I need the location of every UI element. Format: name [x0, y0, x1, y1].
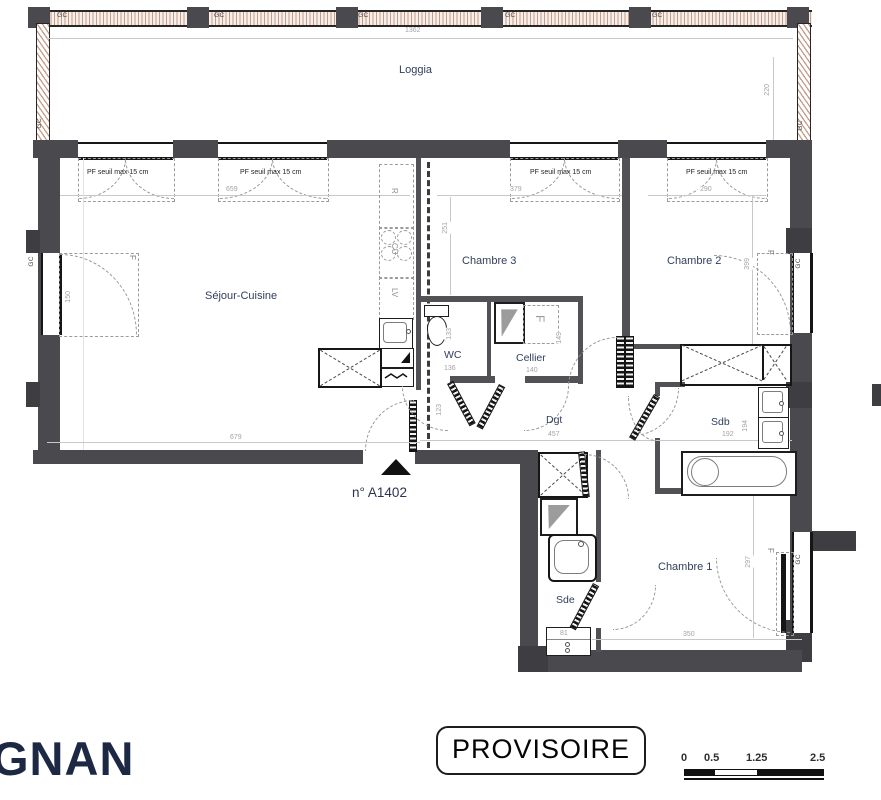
railing-post — [336, 7, 358, 28]
technical-duct — [540, 498, 578, 536]
cabinet-glyph — [401, 352, 410, 363]
closet-chambre2 — [680, 344, 792, 386]
pf-label: PF seuil max 15 cm — [530, 169, 591, 176]
dim-line — [420, 440, 792, 441]
burner — [397, 246, 412, 261]
double-door-leaf — [625, 336, 634, 388]
faucet-dot — [779, 401, 784, 406]
dim-wc-width: 136 — [442, 365, 458, 372]
electrical-panel — [380, 368, 414, 387]
scale-tick: 2.5 — [810, 752, 825, 764]
sdb-washbasin — [758, 387, 789, 419]
wall-kitchen-east — [416, 158, 421, 390]
knob-dot — [565, 648, 570, 653]
closet-cell — [764, 346, 786, 380]
wall-left-pilaster — [26, 382, 40, 407]
dim-line — [437, 195, 625, 196]
wall-corridor-east — [622, 158, 630, 338]
dim-chambre1-width: 350 — [681, 631, 697, 638]
dim-loggia-depth: 220 — [762, 84, 773, 96]
dim-line — [752, 196, 753, 344]
unit-number: n° A1402 — [352, 486, 407, 501]
wall-wc-south — [416, 376, 421, 383]
dim-sde-width: 81 — [558, 630, 570, 637]
faucet-dot — [578, 541, 584, 547]
room-label-dgt: Dgt — [546, 415, 562, 427]
sdb-washbasin — [758, 417, 789, 449]
dim-line — [648, 195, 766, 196]
room-label-chambre2: Chambre 2 — [667, 255, 721, 267]
floor-plan: GC GC GC GC GC GC GC 1362 220 Loggia PF … — [0, 0, 881, 800]
burner — [397, 230, 412, 245]
room-label-sde: Sde — [556, 595, 575, 607]
sde-door-arc — [613, 585, 656, 630]
dim-line-loggia-width — [47, 38, 793, 39]
room-label-sdb: Sdb — [711, 417, 730, 429]
dim-loggia-width: 1362 — [403, 27, 423, 34]
railing-label: GC — [214, 13, 225, 20]
railing-post — [629, 7, 651, 28]
double-door-leaf — [616, 336, 625, 388]
dim-chambre2-depth: 399 — [742, 258, 753, 270]
fridge-label: R — [390, 188, 398, 194]
dim-sdb-depth: 194 — [740, 420, 751, 432]
dim-cellier-width: 140 — [524, 367, 540, 374]
railing-label: GC — [505, 13, 516, 20]
dim-line — [47, 195, 410, 196]
dim-sdb-width: 192 — [720, 431, 736, 438]
dim-line — [592, 639, 802, 640]
double-door-arc — [568, 337, 617, 388]
closet-sejour — [318, 348, 382, 388]
knob-dot — [565, 642, 570, 647]
zigzag-icon — [383, 370, 409, 382]
technical-duct — [494, 302, 525, 344]
entry-cabinet — [380, 348, 414, 368]
wall-right-pilaster — [786, 228, 812, 254]
bathtub — [681, 451, 797, 496]
dim-line — [450, 197, 451, 295]
sde-door-leaf — [570, 583, 600, 630]
dim-dgt: 457 — [546, 431, 562, 438]
dim-wc-depth: 133 — [444, 328, 455, 340]
wall-left-pilaster — [26, 230, 40, 253]
room-label-chambre1: Chambre 1 — [658, 561, 712, 573]
entrance-marker — [381, 459, 411, 475]
pf-label: PF seuil max 15 cm — [87, 169, 148, 176]
faucet-dot — [779, 431, 784, 436]
dishwasher-box — [379, 277, 414, 320]
room-label-loggia: Loggia — [399, 64, 432, 76]
scale-tick: 0 — [681, 752, 687, 764]
pf-label: PF seuil max 15 cm — [240, 169, 301, 176]
room-label-wc: WC — [444, 350, 462, 362]
kitchen-sink — [379, 318, 413, 349]
wall-sde-east — [596, 628, 601, 652]
scale-tick: 1.25 — [746, 752, 767, 764]
dim-cellier-depth: 149 — [554, 332, 565, 344]
window-f-label: F — [766, 250, 774, 255]
sink-basin — [383, 322, 407, 343]
wall-top — [327, 140, 510, 158]
dim-chambre3-width: 379 — [508, 186, 524, 193]
wall-wing-left — [520, 450, 538, 652]
dim-line-loggia-depth — [773, 57, 774, 140]
wall-top — [618, 140, 667, 158]
window-f-label: F — [128, 255, 136, 260]
dim-chambre2-width: 290 — [698, 186, 714, 193]
column-label: GC — [798, 120, 805, 131]
railing-post — [187, 7, 209, 28]
duct-triangle — [544, 502, 574, 532]
window-label: GC — [29, 256, 36, 267]
scale-bar-underline — [684, 778, 824, 780]
extension-line — [83, 158, 84, 450]
scale-bar-segment — [684, 769, 714, 776]
cooktop-label: CU — [390, 243, 398, 255]
dim-line — [47, 442, 420, 443]
wall-wc-south — [450, 376, 495, 383]
room-label-chambre3: Chambre 3 — [462, 255, 516, 267]
entry-door-arc — [365, 400, 414, 451]
window-chambre1-right — [792, 532, 813, 633]
closet-cell — [682, 346, 762, 380]
dishwasher-label: LV — [390, 288, 398, 297]
window-f-label: F — [766, 548, 774, 553]
freezer-label: F — [534, 315, 546, 322]
wall-top — [173, 140, 218, 158]
railing-post — [481, 7, 503, 28]
brand-logo: GNAN — [0, 735, 134, 782]
railing-label: GC — [358, 13, 369, 20]
wall-sejour-south — [33, 450, 363, 464]
room-label-sejour: Séjour-Cuisine — [205, 290, 277, 302]
faucet-dot — [406, 329, 411, 334]
scale-bar-segment — [758, 769, 824, 776]
dim-chambre3-depth: 251 — [440, 222, 451, 234]
duct-triangle — [498, 306, 521, 340]
railing-label: GC — [57, 13, 68, 20]
window-label: GC — [796, 258, 803, 269]
wall-wc-cellier-divider — [487, 302, 491, 378]
wall-sdb-west — [655, 438, 660, 490]
railing-label: GC — [652, 13, 663, 20]
scale-tick: 0.5 — [704, 752, 719, 764]
wc-door-leaf — [447, 381, 476, 427]
chambre1-door-arc — [584, 454, 629, 499]
fridge-box — [379, 164, 414, 229]
sde-washbasin — [548, 534, 597, 582]
dim-sejour-window: 150 — [63, 291, 74, 303]
bathtub-circle — [691, 458, 719, 486]
cellier-door-leaf — [476, 384, 505, 430]
dim-sejour-bottom: 679 — [228, 434, 244, 441]
room-label-cellier: Cellier — [516, 353, 546, 365]
provisoire-stamp: PROVISOIRE — [436, 726, 646, 775]
window-label: GC — [796, 554, 803, 565]
dim-sejour-top: 659 — [224, 186, 240, 193]
scale-bar-segment — [714, 769, 758, 776]
wall-chambre2-south — [630, 344, 680, 349]
column-label: GC — [37, 118, 44, 129]
exterior-pilaster — [872, 384, 881, 406]
exterior-pilaster — [812, 531, 856, 551]
loggia-railing — [33, 10, 812, 27]
wall-wing-corner — [518, 646, 548, 672]
cabinet-line — [547, 639, 590, 640]
pf-label: PF seuil max 15 cm — [686, 169, 747, 176]
dim-chambre1-depth: 297 — [743, 556, 754, 568]
